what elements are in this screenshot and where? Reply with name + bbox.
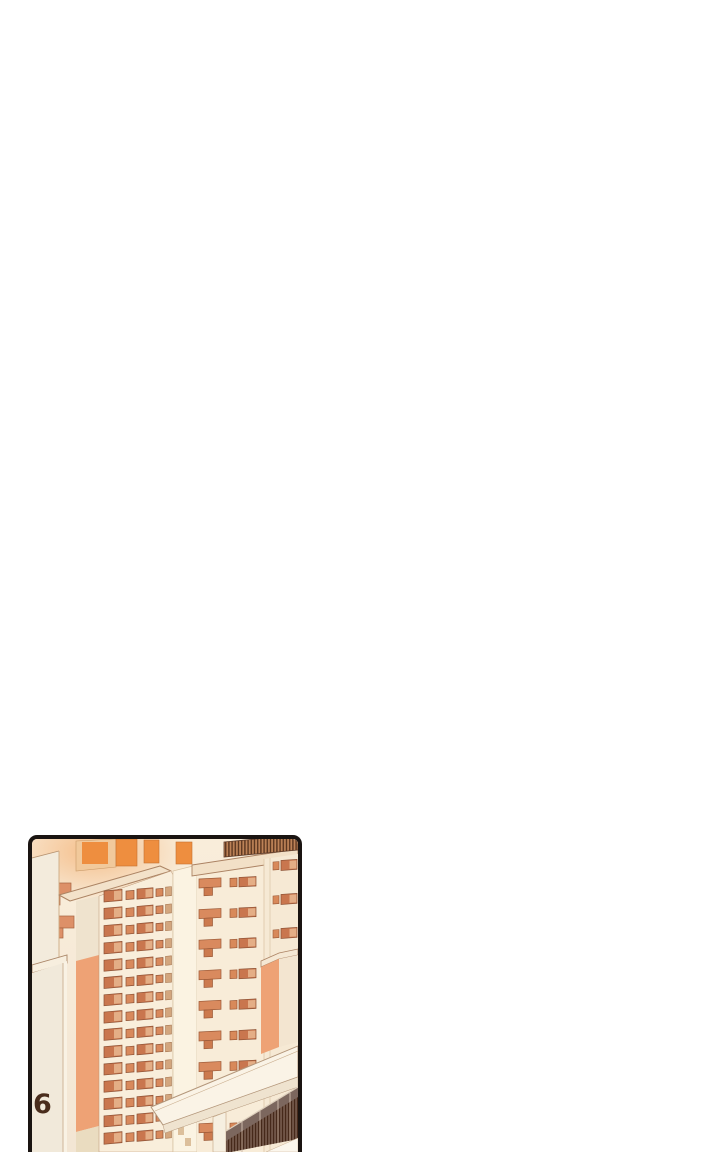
- building-left-wall-strip: [32, 851, 59, 975]
- tower-left-sidewall-salmon: [76, 955, 99, 1132]
- comic-panel: 6: [28, 835, 302, 1152]
- comic-page: 6: [0, 0, 720, 1152]
- foreground-corner-sliver: [213, 1112, 226, 1152]
- page-number: 6: [33, 1091, 52, 1118]
- building-corner-right: [261, 949, 298, 1054]
- gap-bright-window: [176, 842, 192, 864]
- building-foreground-left: [32, 955, 67, 1152]
- cityscape-illustration: [32, 839, 298, 1152]
